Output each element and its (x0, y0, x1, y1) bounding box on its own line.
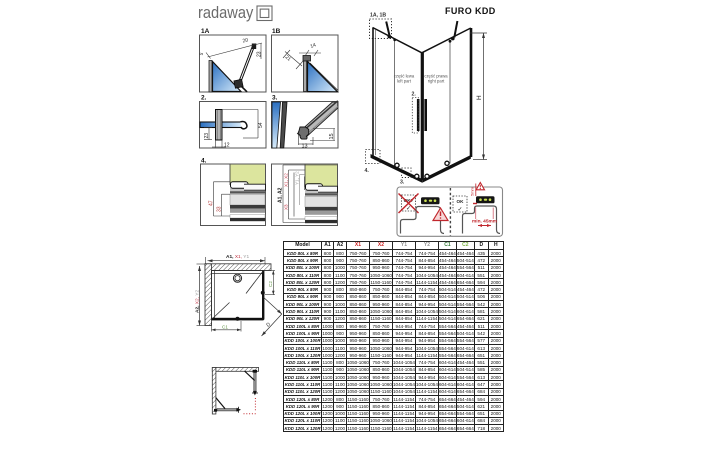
svg-text:✓: ✓ (457, 207, 462, 213)
svg-text:C1: C1 (222, 325, 228, 330)
svg-text:4.: 4. (201, 158, 207, 165)
svg-text:5mm: 5mm (470, 186, 475, 196)
svg-text:13: 13 (302, 144, 308, 150)
svg-text:1A, 1B: 1A, 1B (370, 13, 386, 19)
svg-text:H: H (476, 95, 483, 100)
svg-text:A1, A2: A1, A2 (278, 187, 284, 203)
svg-text:54: 54 (258, 122, 264, 128)
svg-text:A1, X1, Y1: A1, X1, Y1 (226, 254, 249, 260)
svg-text:OK: OK (457, 199, 465, 204)
svg-text:23: 23 (204, 133, 210, 139)
svg-text:1A: 1A (201, 28, 210, 35)
svg-text:1B: 1B (272, 28, 281, 35)
svg-text:min. 45mm: min. 45mm (472, 219, 497, 225)
svg-text:left part: left part (397, 79, 412, 84)
svg-text:23: 23 (257, 51, 263, 57)
svg-text:15: 15 (329, 133, 335, 139)
svg-text:47: 47 (209, 200, 215, 206)
svg-text:C2: C2 (268, 281, 273, 287)
svg-text:2.: 2. (201, 95, 207, 102)
svg-text:12: 12 (224, 143, 230, 149)
svg-text:D: D (265, 321, 272, 328)
svg-text:2.: 2. (412, 92, 417, 98)
svg-text:✓: ✓ (406, 206, 411, 212)
svg-text:X1, X2: X1, X2 (284, 173, 289, 187)
svg-text:Y1, Y2: Y1, Y2 (294, 171, 299, 185)
svg-text:33: 33 (217, 206, 223, 212)
svg-text:3.: 3. (400, 180, 405, 186)
svg-text:right part: right part (428, 79, 445, 84)
svg-text:X3: X3 (284, 204, 289, 210)
svg-text:4.: 4. (365, 168, 370, 174)
svg-text:3.: 3. (272, 95, 278, 102)
